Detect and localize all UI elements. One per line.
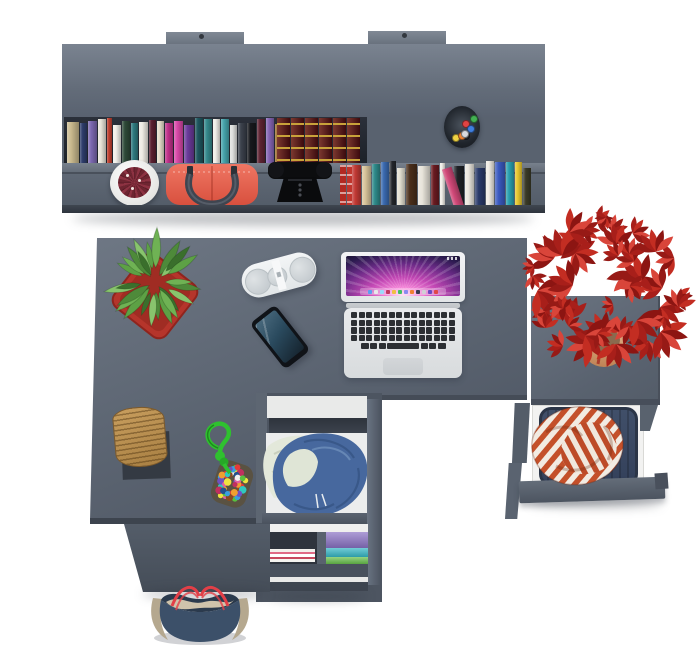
trackpad [383,358,423,375]
key [404,312,410,318]
key [396,335,402,341]
key [419,320,425,326]
folded-clothes-teal [326,548,368,557]
key [441,320,447,326]
key [374,320,380,326]
key [389,320,395,326]
key [366,335,372,341]
key [361,343,369,349]
right-drawer-cap [654,473,668,490]
laptop [338,248,468,380]
green-plant [92,226,222,348]
key [389,312,395,318]
key [411,312,417,318]
scene [0,0,700,645]
key-row [349,343,457,349]
drawer-back-edge [267,396,367,418]
key [426,327,432,333]
rope-toy [196,418,268,514]
key [421,343,428,349]
key [449,335,455,341]
key [366,327,372,333]
key-row [349,320,457,326]
key [441,335,447,341]
key [370,343,377,349]
key [441,327,447,333]
key [411,320,417,326]
key [449,312,455,318]
key-row [349,335,457,341]
laptop-keyboard [349,312,457,350]
key [426,320,432,326]
key [426,335,432,341]
dock-icon [398,290,402,294]
dock-icon [368,290,372,294]
key [387,343,419,349]
key [374,312,380,318]
key [434,312,440,318]
menubar-icons [447,257,457,260]
dock-icon [386,290,390,294]
key [381,335,387,341]
key [359,320,365,326]
key [366,320,372,326]
dock-icon [422,290,426,294]
key [441,312,447,318]
key [419,312,425,318]
key [419,327,425,333]
key [396,327,402,333]
key [381,312,387,318]
dock-icon [392,290,396,294]
cabinet-shadow [268,592,368,601]
key [379,343,386,349]
laptop-screen [346,256,460,296]
drawer-clothes [258,424,376,524]
key [404,327,410,333]
key [438,343,446,349]
shelf-edge [262,524,368,532]
drawer-right-wall [367,399,380,585]
key [419,335,425,341]
dock-icon [434,290,438,294]
key [366,312,372,318]
key [374,327,380,333]
key [374,335,380,341]
key [351,320,357,326]
folded-clothes-purple [326,532,368,548]
dock-icon [380,290,384,294]
key [434,320,440,326]
key [404,335,410,341]
key [389,335,395,341]
wicker-basket [112,405,182,485]
key [426,312,432,318]
laptop-lid [341,252,465,302]
key [351,327,357,333]
red-plant [518,196,694,376]
key [449,320,455,326]
dock-icon [410,290,414,294]
key [449,327,455,333]
dock-icon [428,290,432,294]
maple-leaf-cluster [599,293,618,318]
key [359,312,365,318]
key [351,312,357,318]
key [351,335,357,341]
wicker-cube [111,405,168,469]
shelf-divider [317,532,326,564]
folded-clothes-green [326,557,368,564]
key [429,343,436,349]
striped-shirt [516,396,648,500]
center-drawer-front [262,513,369,524]
key [411,335,417,341]
key [404,320,410,326]
key-row [349,312,457,318]
dock [360,288,447,295]
dock-icon [404,290,408,294]
key [434,327,440,333]
key [396,320,402,326]
key [389,327,395,333]
key-row [349,327,457,333]
key [359,327,365,333]
key [411,327,417,333]
key [396,312,402,318]
folded-clothes-left [265,549,315,562]
cabinet-bottom [262,582,368,591]
laptop-base [344,308,462,378]
key [381,327,387,333]
cabinet-band [262,564,368,577]
desk-front-edge [90,518,268,524]
key [434,335,440,341]
key [359,335,365,341]
maple-leaf-cluster [542,326,569,362]
tote-bag [146,580,254,645]
key [381,320,387,326]
dock-icon [374,290,378,294]
dock-icon [416,290,420,294]
